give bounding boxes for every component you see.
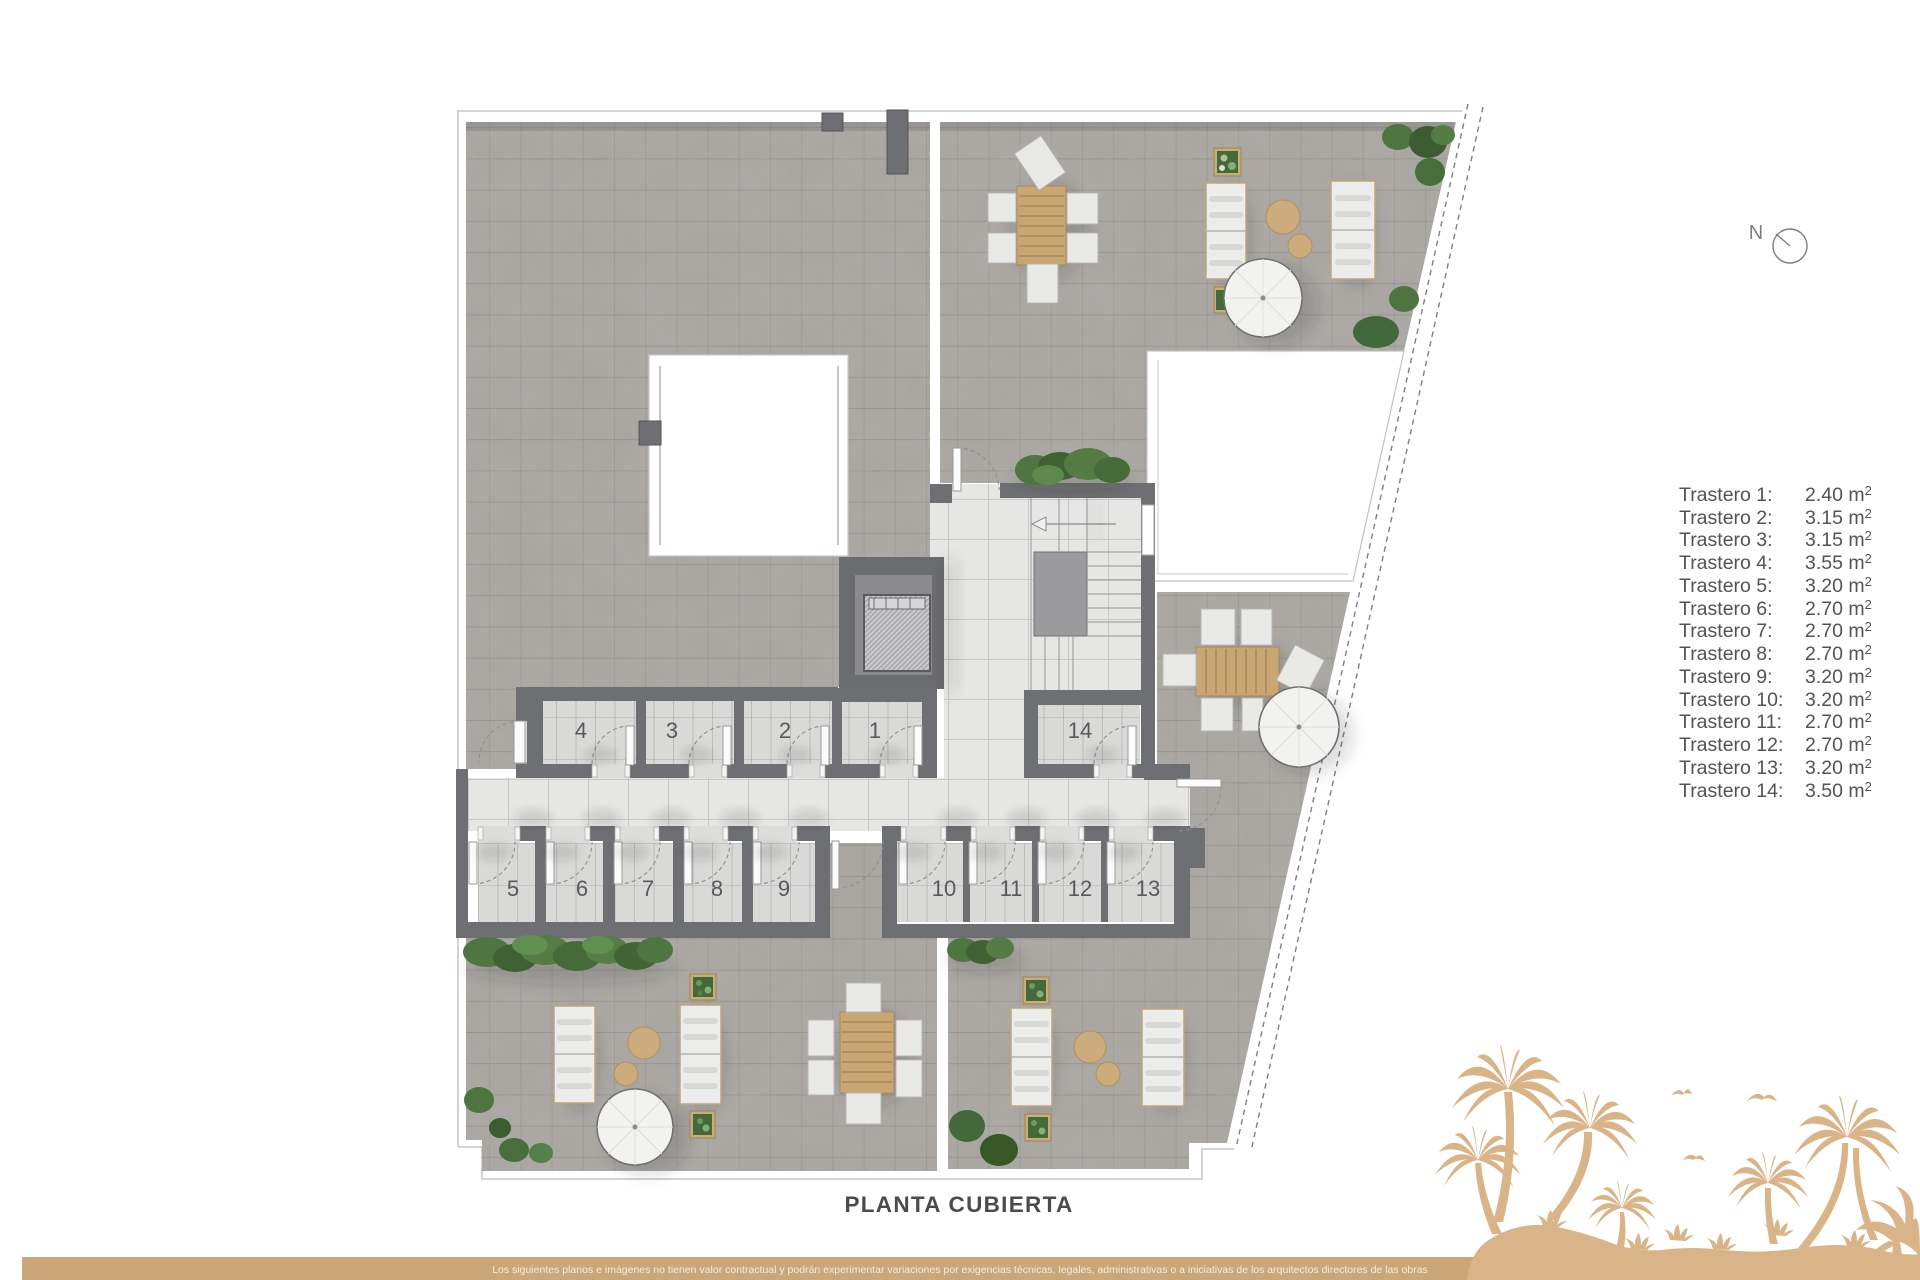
svg-text:Trastero 4:: Trastero 4: [1679,552,1773,574]
svg-text:3.55 m2: 3.55 m2 [1805,551,1872,574]
svg-text:Trastero 10:: Trastero 10: [1679,689,1783,711]
svg-text:10: 10 [932,876,956,901]
svg-text:Trastero 8:: Trastero 8: [1679,643,1773,665]
svg-text:Trastero 6:: Trastero 6: [1679,598,1773,620]
svg-text:3.50 m2: 3.50 m2 [1805,779,1872,802]
svg-text:14: 14 [1068,718,1092,743]
svg-text:Trastero 14:: Trastero 14: [1679,780,1783,802]
svg-text:3.20 m2: 3.20 m2 [1805,688,1872,711]
svg-text:Trastero 7:: Trastero 7: [1679,620,1773,642]
svg-text:Trastero 12:: Trastero 12: [1679,734,1783,756]
svg-text:8: 8 [711,876,723,901]
svg-text:Trastero 3:: Trastero 3: [1679,529,1773,551]
svg-text:11: 11 [1000,876,1023,901]
svg-text:N: N [1749,222,1763,244]
svg-text:2: 2 [779,718,791,743]
svg-text:2.40 m2: 2.40 m2 [1805,483,1872,506]
svg-text:PLANTA CUBIERTA: PLANTA CUBIERTA [844,1192,1073,1217]
svg-text:1: 1 [869,718,881,743]
svg-text:9: 9 [778,876,790,901]
svg-text:3.15 m2: 3.15 m2 [1805,528,1872,551]
svg-text:4: 4 [575,718,587,743]
svg-text:3.20 m2: 3.20 m2 [1805,665,1872,688]
svg-text:3: 3 [666,718,678,743]
svg-text:2.70 m2: 2.70 m2 [1805,710,1872,733]
svg-text:Trastero 5:: Trastero 5: [1679,575,1773,597]
svg-text:2.70 m2: 2.70 m2 [1805,642,1872,665]
svg-text:Trastero 13:: Trastero 13: [1679,757,1783,779]
svg-text:2.70 m2: 2.70 m2 [1805,597,1872,620]
svg-text:6: 6 [576,876,588,901]
svg-text:7: 7 [642,876,654,901]
svg-text:Trastero 11:: Trastero 11: [1679,711,1782,733]
svg-text:Trastero 2:: Trastero 2: [1679,507,1773,529]
svg-text:3.15 m2: 3.15 m2 [1805,506,1872,529]
svg-text:12: 12 [1068,876,1092,901]
svg-text:13: 13 [1136,876,1160,901]
svg-text:3.20 m2: 3.20 m2 [1805,756,1872,779]
svg-text:2.70 m2: 2.70 m2 [1805,619,1872,642]
svg-text:2.70 m2: 2.70 m2 [1805,733,1872,756]
svg-text:Trastero 1:: Trastero 1: [1679,484,1773,506]
svg-text:Trastero 9:: Trastero 9: [1679,666,1773,688]
svg-text:3.20 m2: 3.20 m2 [1805,574,1872,597]
svg-text:5: 5 [507,876,519,901]
svg-text:Los siguientes planos e imágen: Los siguientes planos e imágenes no tien… [492,1264,1428,1276]
